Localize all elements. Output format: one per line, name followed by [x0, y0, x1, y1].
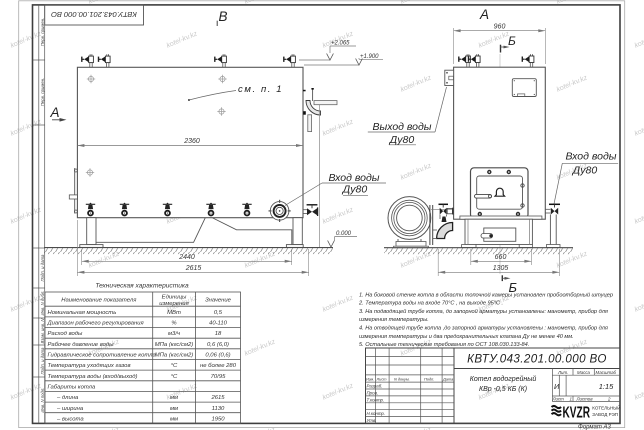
- svg-text:0,6 (6,0): 0,6 (6,0): [207, 342, 229, 348]
- svg-text:2. Температура воды на входе: 2. Температура воды на входе 70°С , на в…: [358, 301, 503, 307]
- svg-text:А: А: [479, 7, 489, 22]
- svg-text:измерения температуры и два пр: измерения температуры и два предохраните…: [359, 334, 574, 340]
- svg-text:Инв. N подл.: Инв. N подл.: [40, 387, 45, 412]
- svg-text:1. На боковой стенке котла в: 1. На боковой стенке котла в области топ…: [359, 291, 613, 298]
- svg-text:1950: 1950: [211, 416, 225, 422]
- svg-text:0,06 (0,6): 0,06 (0,6): [205, 353, 230, 359]
- svg-text:Лист: Лист: [552, 396, 565, 401]
- svg-text:2615: 2615: [210, 395, 225, 401]
- svg-text:Инв. N дубл.: Инв. N дубл.: [40, 291, 45, 316]
- svg-text:Н.контр.: Н.контр.: [367, 411, 386, 416]
- svg-text:1305: 1305: [493, 265, 509, 272]
- svg-text:м3/ч: м3/ч: [168, 331, 180, 337]
- svg-text:Дата: Дата: [442, 377, 454, 382]
- svg-text:МВт: МВт: [167, 310, 181, 316]
- svg-text:мм: мм: [170, 416, 178, 422]
- svg-text:2615: 2615: [185, 265, 202, 272]
- svg-text:5. Остальные технические треб: 5. Остальные технические требования по О…: [359, 342, 529, 348]
- svg-text:Формат А3: Формат А3: [578, 425, 611, 430]
- svg-text:2: 2: [607, 396, 611, 401]
- svg-text:Диапазон рабочего регулировани: Диапазон рабочего регулирования: [47, 321, 145, 327]
- svg-text:Рабочее давление воды: Рабочее давление воды: [48, 342, 115, 348]
- svg-text:измерения: измерения: [159, 301, 189, 307]
- svg-text:Вход воды: Вход воды: [566, 151, 617, 163]
- svg-text:Габариты котла: Габариты котла: [48, 385, 96, 391]
- svg-text:Выход воды: Выход воды: [372, 121, 431, 133]
- svg-text:1130: 1130: [212, 406, 225, 412]
- svg-text:660: 660: [495, 254, 507, 261]
- svg-text:Техническая характеристика: Техническая характеристика: [95, 283, 189, 290]
- svg-text:%: %: [171, 321, 176, 327]
- svg-text:18: 18: [215, 331, 222, 337]
- svg-text:измерения температуры.: измерения температуры.: [359, 317, 429, 323]
- svg-text:Температура уходящих газов: Температура уходящих газов: [48, 363, 131, 369]
- svg-text:1:15: 1:15: [599, 382, 614, 391]
- svg-text:0.000: 0.000: [336, 231, 352, 237]
- svg-text:КВТУ.043.201.00.000 ВО: КВТУ.043.201.00.000 ВО: [51, 10, 137, 19]
- svg-text:Наименование показателя: Наименование показателя: [61, 298, 137, 304]
- svg-text:МПа (кгс/см2): МПа (кгс/см2): [155, 353, 194, 359]
- svg-text:N докум.: N докум.: [394, 377, 410, 382]
- svg-text:Утв.: Утв.: [367, 418, 377, 423]
- svg-text:70/95: 70/95: [211, 374, 226, 380]
- svg-text:Ду80: Ду80: [572, 165, 598, 177]
- svg-text:3. На подводящей трубе котла,: 3. На подводящей трубе котла, до запорно…: [359, 308, 608, 315]
- svg-text:Подп.: Подп.: [424, 377, 434, 382]
- svg-text:+2.065: +2.065: [331, 41, 350, 47]
- svg-text:Расход воды: Расход воды: [48, 331, 84, 337]
- svg-text:40-110: 40-110: [209, 321, 228, 327]
- svg-text:Подп. и дата: Подп. и дата: [40, 347, 45, 375]
- svg-text:– длина: – длина: [56, 395, 79, 401]
- svg-text:2360: 2360: [183, 138, 200, 145]
- svg-text:°С: °С: [171, 363, 178, 369]
- svg-text:не более 280: не более 280: [200, 363, 237, 369]
- svg-text:2440: 2440: [178, 254, 195, 261]
- svg-text:Подп. и дата: Подп. и дата: [40, 254, 45, 282]
- svg-text:– ширина: – ширина: [56, 406, 84, 412]
- svg-text:Лит.: Лит.: [557, 370, 568, 375]
- svg-text:ЗАВОД РЭП: ЗАВОД РЭП: [592, 412, 618, 417]
- svg-text:Листов: Листов: [576, 396, 594, 401]
- svg-text:Вход воды: Вход воды: [329, 172, 380, 184]
- svg-text:Перв. примен.: Перв. примен.: [40, 18, 45, 47]
- svg-text:Лист: Лист: [376, 377, 388, 382]
- svg-text:Пров.: Пров.: [367, 390, 379, 395]
- svg-text:Разраб.: Разраб.: [367, 384, 383, 389]
- svg-text:И: И: [554, 382, 560, 391]
- svg-text:4. На отводящей трубе котла ,: 4. На отводящей трубе котла ,до запорной…: [359, 325, 608, 332]
- svg-text:мм: мм: [170, 395, 178, 401]
- svg-text:Б: Б: [508, 34, 516, 48]
- svg-text:Т.контр.: Т.контр.: [367, 397, 385, 402]
- svg-text:Значение: Значение: [205, 298, 232, 304]
- svg-text:°С: °С: [171, 374, 178, 380]
- svg-text:В: В: [219, 9, 228, 24]
- svg-text:КВТУ.043.201.00.000 ВО: КВТУ.043.201.00.000 ВО: [467, 353, 607, 366]
- svg-text:Перв. примен.: Перв. примен.: [40, 78, 45, 107]
- svg-text:KVZR: KVZR: [563, 405, 591, 422]
- svg-text:Взам. инв. N: Взам. инв. N: [40, 318, 45, 344]
- svg-text:Котел водогрейный: Котел водогрейный: [470, 375, 537, 383]
- svg-text:Ду80: Ду80: [389, 134, 415, 146]
- svg-text:– высота: – высота: [56, 416, 84, 422]
- svg-text:Гидравлическое сопротивление к: Гидравлическое сопротивление котла: [48, 353, 157, 359]
- svg-text:Масса: Масса: [577, 370, 591, 375]
- svg-text:0,5: 0,5: [214, 310, 223, 316]
- svg-text:960: 960: [494, 23, 506, 30]
- svg-text:Изм.: Изм.: [366, 377, 374, 382]
- svg-text:КОТЕЛЬНЫЙ: КОТЕЛЬНЫЙ: [592, 404, 620, 411]
- svg-text:мм: мм: [170, 406, 178, 412]
- svg-text:МПа (кгс/см2): МПа (кгс/см2): [155, 342, 194, 348]
- svg-text:Масштаб: Масштаб: [596, 370, 617, 375]
- svg-text:А: А: [50, 105, 60, 120]
- svg-text:Ду80: Ду80: [342, 184, 368, 196]
- svg-text:Единицы: Единицы: [162, 295, 187, 301]
- svg-text:Температура воды (вход/выход): Температура воды (вход/выход): [48, 374, 138, 380]
- svg-text:см. п. 1: см. п. 1: [238, 84, 283, 95]
- svg-text:Номинальная мощность: Номинальная мощность: [48, 310, 117, 316]
- svg-text:КВр -0,5 КБ (К): КВр -0,5 КБ (К): [479, 386, 527, 393]
